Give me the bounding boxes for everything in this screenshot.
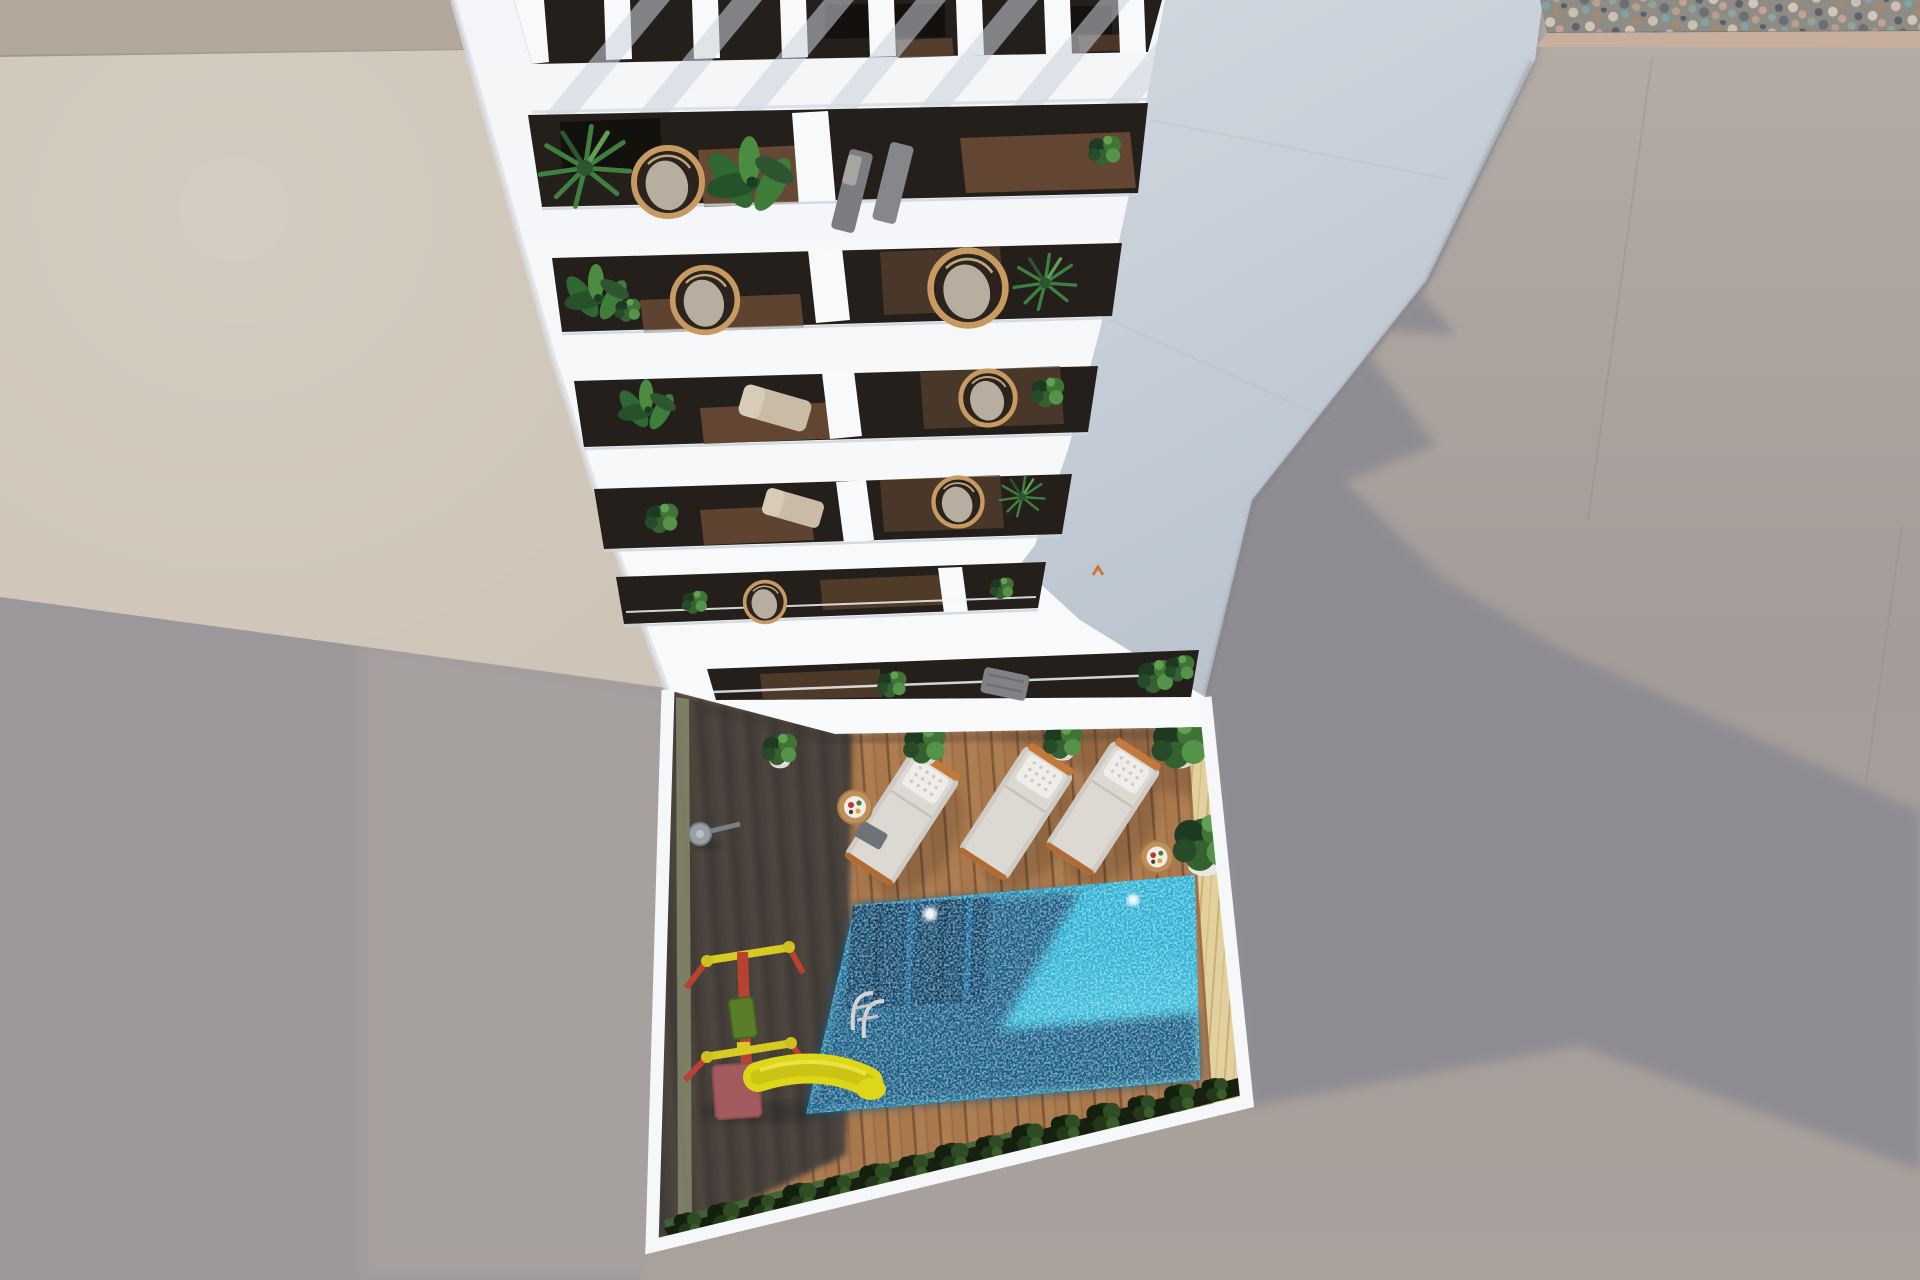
neighbor-wall-left-lit [360, 642, 676, 1280]
aerial-render [0, 0, 1920, 1280]
render-viewport [0, 0, 1920, 1280]
side-table-2 [1141, 841, 1173, 873]
swing-seat [729, 997, 758, 1040]
gravel-strip [1540, 0, 1920, 33]
roof-strip [0, 0, 466, 57]
pool-skimmer-dot [923, 907, 937, 921]
tan-border-strip [1536, 31, 1920, 48]
side-table-1 [838, 790, 872, 824]
pool-skimmer-dot [1127, 894, 1139, 906]
balcony-row-1 [528, 103, 1148, 207]
